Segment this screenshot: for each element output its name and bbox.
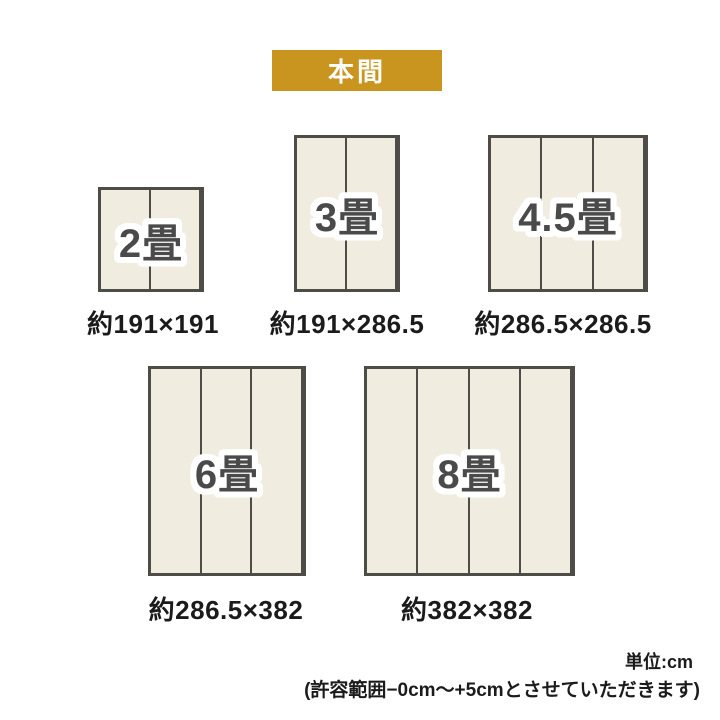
tatami-panel bbox=[252, 369, 303, 573]
tatami-panel bbox=[418, 369, 469, 573]
mat-45jo: 4.5畳 bbox=[488, 135, 648, 292]
mat-6jo-size: 約286.5×382 bbox=[149, 590, 304, 627]
tolerance-note: (許容範囲−0cm〜+5cmとさせていただきます) bbox=[304, 675, 700, 702]
unit-label: 単位:cm bbox=[625, 648, 693, 674]
mat-8jo: 8畳 bbox=[364, 366, 575, 576]
tatami-panel bbox=[297, 138, 347, 289]
tatami-panel bbox=[542, 138, 593, 289]
mat-3jo: 3畳 bbox=[294, 135, 400, 292]
tatami-panel bbox=[491, 138, 542, 289]
mat-8jo-size: 約382×382 bbox=[401, 590, 533, 627]
size-category-badge: 本間 bbox=[272, 50, 442, 91]
size-diagram: 本間 2畳 約191×191 3畳 約191×286.5 4.5畳 約286.5… bbox=[0, 0, 720, 720]
tatami-panel bbox=[594, 138, 645, 289]
tatami-panel bbox=[347, 138, 397, 289]
tatami-panel bbox=[151, 190, 201, 289]
mat-3jo-size: 約191×286.5 bbox=[270, 304, 425, 341]
tatami-panel bbox=[521, 369, 572, 573]
size-category-badge-label: 本間 bbox=[328, 52, 386, 89]
tatami-panel bbox=[202, 369, 253, 573]
mat-2jo: 2畳 bbox=[98, 187, 204, 292]
tatami-panel bbox=[367, 369, 418, 573]
tatami-panel bbox=[151, 369, 202, 573]
tatami-panel bbox=[470, 369, 521, 573]
tatami-panel bbox=[101, 190, 151, 289]
mat-45jo-size: 約286.5×286.5 bbox=[474, 304, 651, 341]
mat-2jo-size: 約191×191 bbox=[87, 304, 219, 341]
mat-6jo: 6畳 bbox=[148, 366, 306, 576]
